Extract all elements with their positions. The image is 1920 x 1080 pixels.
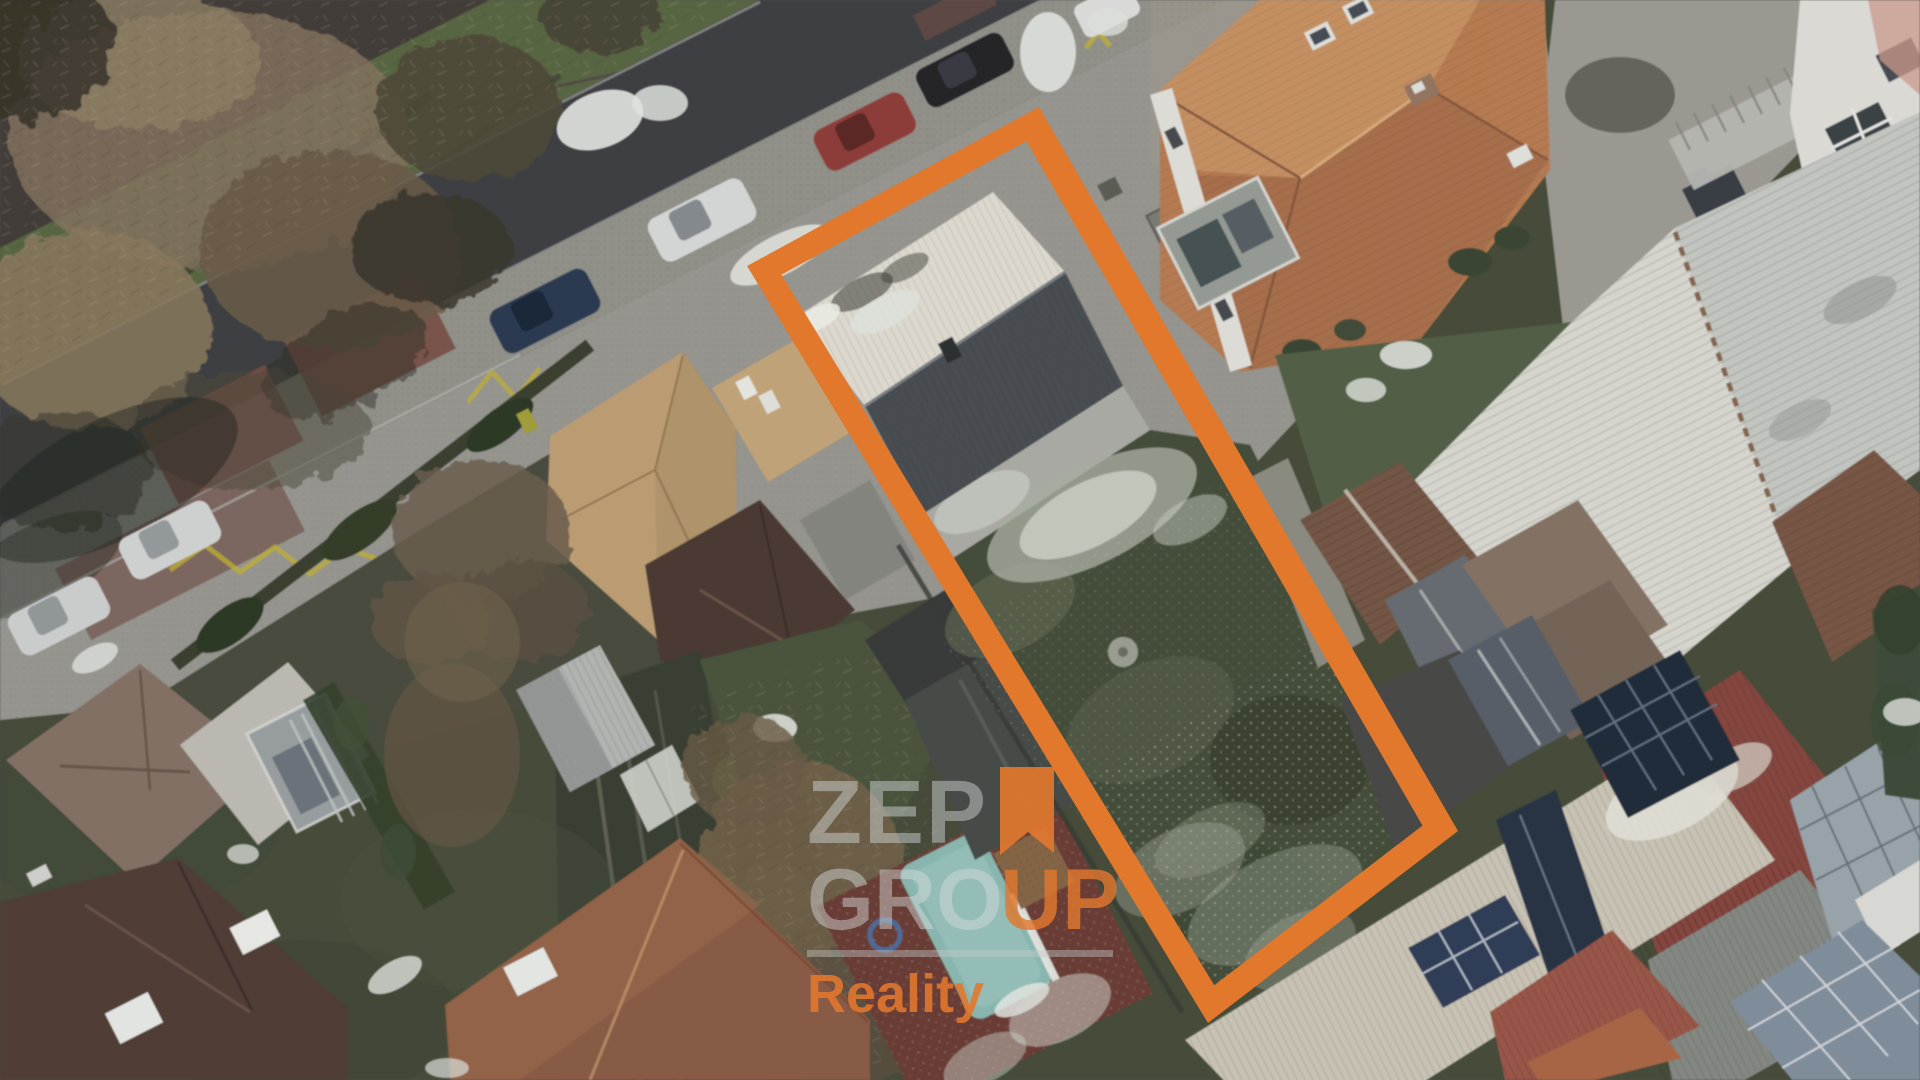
svg-text:ZEP: ZEP [807,763,988,863]
svg-text:GRO: GRO [807,852,1003,948]
svg-text:Reality: Reality [807,964,984,1024]
svg-text:UP: UP [1000,852,1119,948]
